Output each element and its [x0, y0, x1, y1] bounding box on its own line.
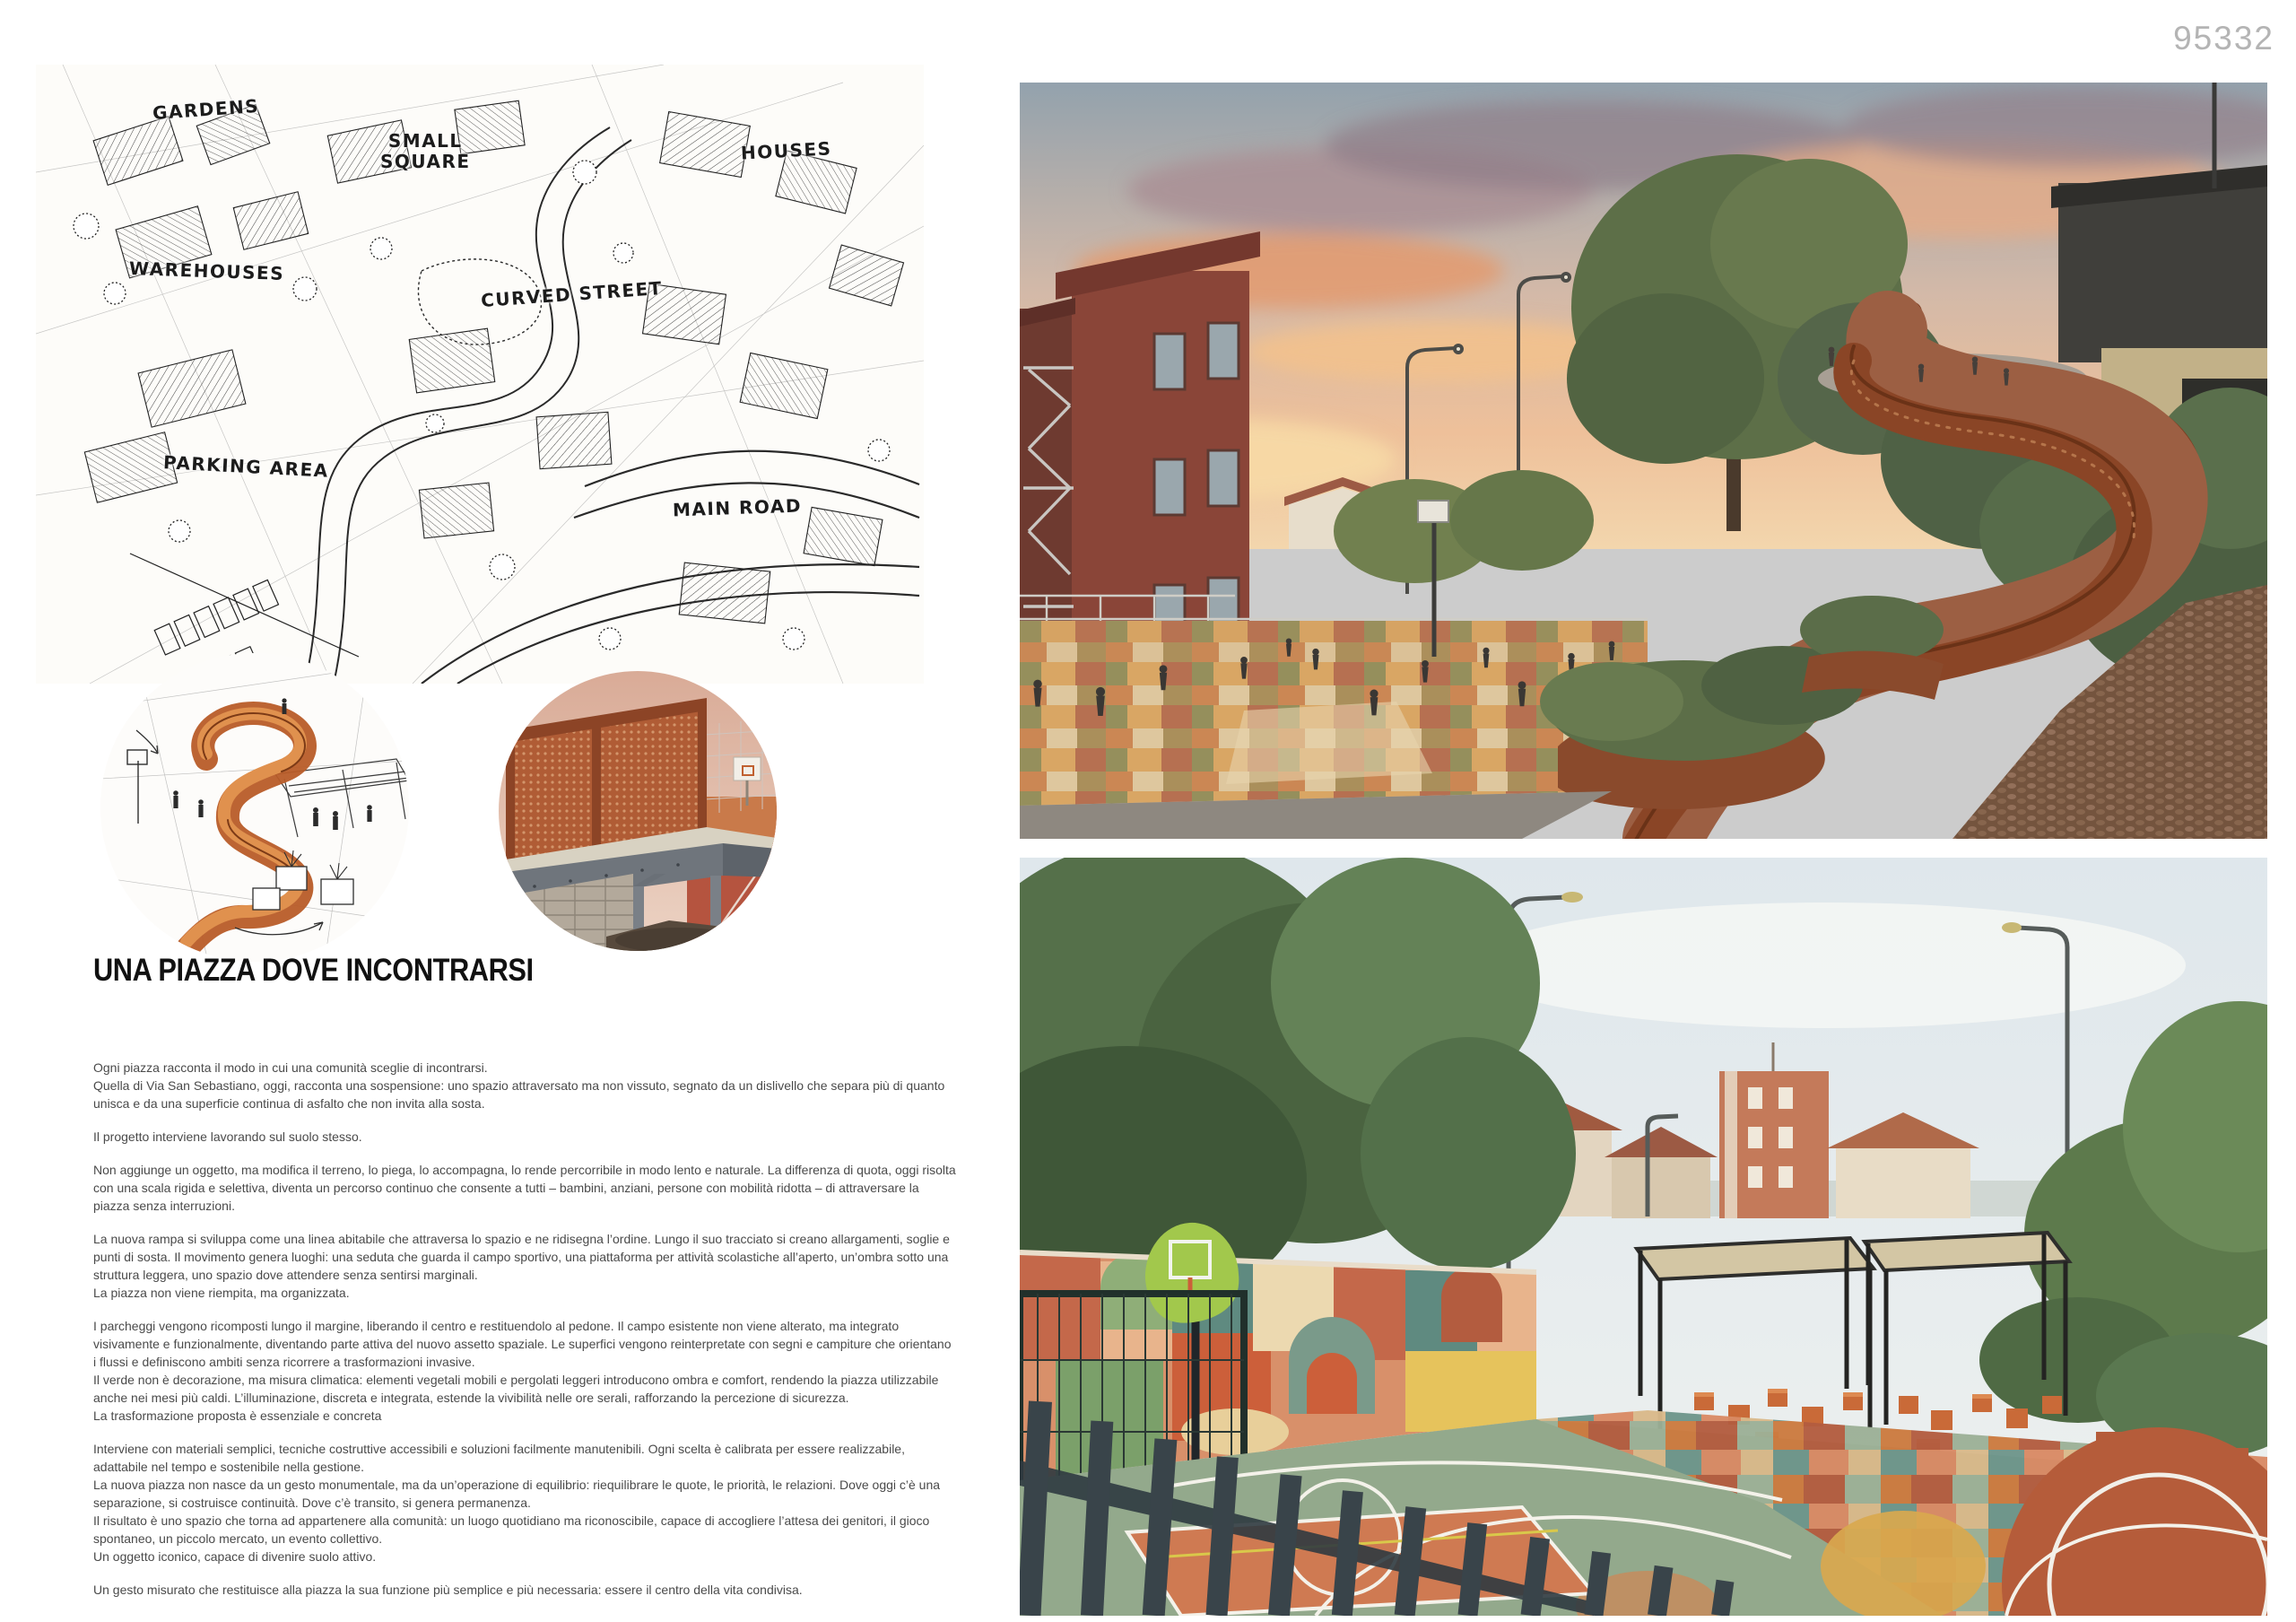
- paragraph-7: Un gesto misurato che restituisce alla p…: [93, 1581, 956, 1599]
- render-top-scene: [1020, 83, 2267, 839]
- clouds: [1468, 903, 2186, 1028]
- article-body: Ogni piazza racconta il modo in cui una …: [93, 1059, 956, 1599]
- ramp-sketch-drawing: [100, 653, 409, 962]
- render-corten-ramp-plaza: [1020, 83, 2267, 839]
- presentation-board: 95332: [0, 0, 2296, 1622]
- paragraph-3: Non aggiunge un oggetto, ma modifica il …: [93, 1161, 956, 1215]
- board-id-number: 95332: [2173, 20, 2274, 57]
- sketch-label-small-square: SMALL SQUARE: [380, 131, 471, 172]
- railing-photo: [499, 671, 777, 951]
- sketch-label-main-road: MAIN ROAD: [673, 494, 803, 520]
- paragraph-5: I parcheggi vengono ricomposti lungo il …: [93, 1317, 956, 1425]
- article: UNA PIAZZA DOVE INCONTRARSI Ogni piazza …: [93, 953, 956, 1599]
- paragraph-4: La nuova rampa si sviluppa come una line…: [93, 1230, 956, 1302]
- photo-colored-court: [1020, 858, 2267, 1616]
- paragraph-1: Ogni piazza racconta il modo in cui una …: [93, 1059, 956, 1112]
- paragraph-6: Interviene con materiali semplici, tecni…: [93, 1440, 956, 1565]
- sketch-masterplan-figure: GARDENS SMALL SQUARE HOUSES WAREHOUSES C…: [36, 65, 924, 684]
- paragraph-2: Il progetto interviene lavorando sul suo…: [93, 1128, 956, 1146]
- photo-bottom-scene: [1020, 858, 2267, 1616]
- inset-ramp-concept-sketch: [100, 653, 409, 962]
- inset-railing-detail-photo: [499, 671, 777, 951]
- article-title: UNA PIAZZA DOVE INCONTRARSI: [93, 953, 853, 989]
